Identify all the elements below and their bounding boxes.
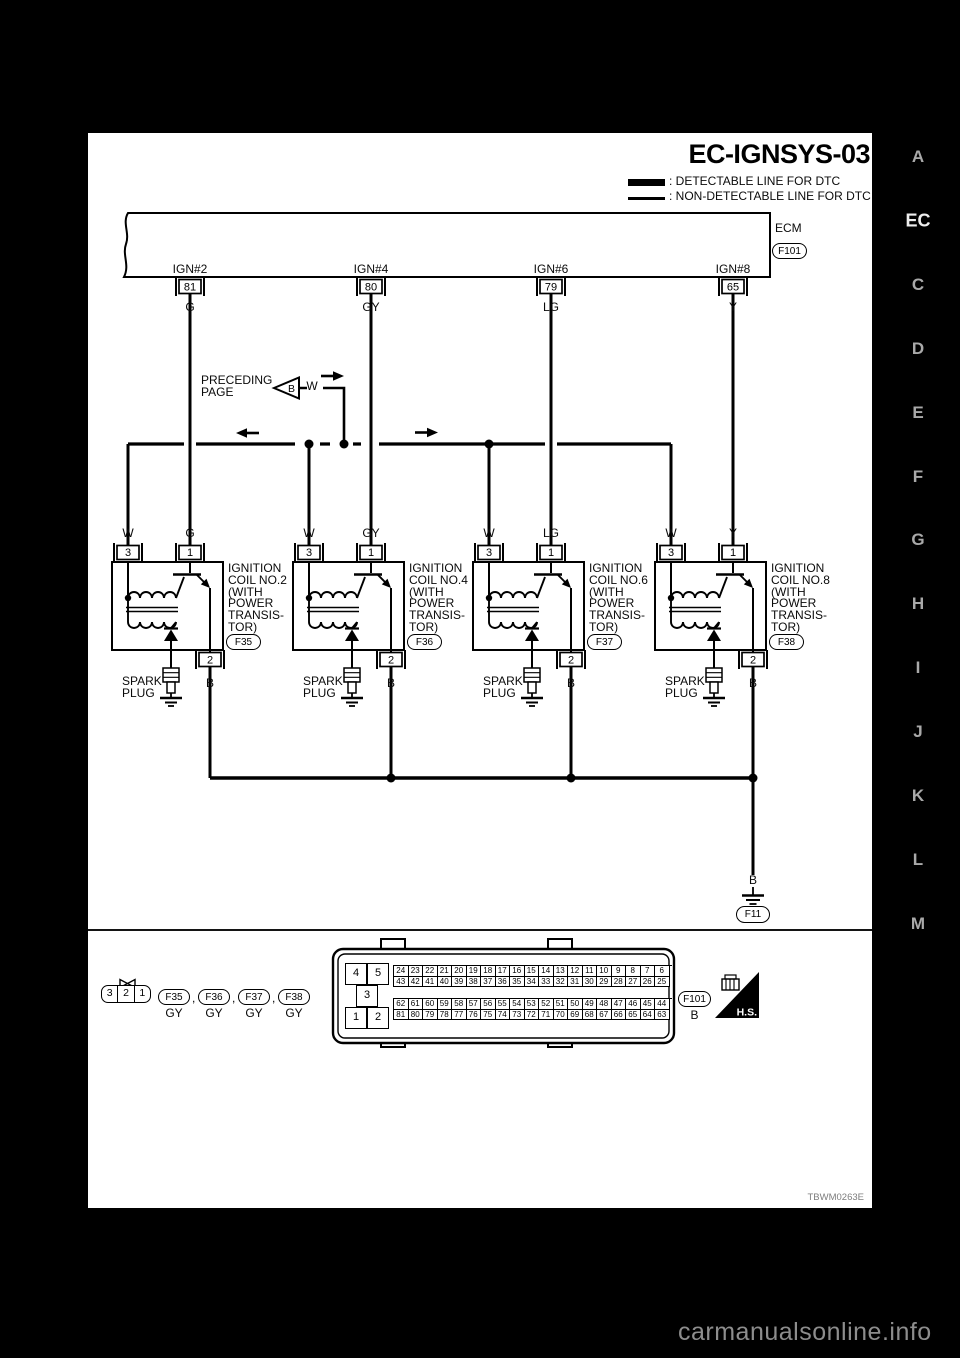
ecm-pin-23: 23 <box>409 966 424 977</box>
ecm-pin-81: 81 <box>394 1010 409 1021</box>
wire-color-label: W <box>108 528 148 540</box>
coil-terminal: 3 <box>668 547 674 559</box>
wire-color-label: Y <box>713 302 753 314</box>
wire-color-label: B <box>738 875 768 887</box>
wire-color-label: LG <box>531 528 571 540</box>
ecm-pin-45: 45 <box>641 999 656 1010</box>
ecm-pin-69: 69 <box>568 1010 583 1021</box>
ecm-pin-47: 47 <box>612 999 627 1010</box>
coil-terminal: 2 <box>388 655 394 667</box>
coil-connector-ref: F37 <box>587 634 622 650</box>
ecm-pin-20: 20 <box>452 966 467 977</box>
sidebar-letter-a: A <box>912 147 924 167</box>
ecm-pin-29: 29 <box>597 977 612 988</box>
junction-dot <box>485 440 494 449</box>
output-label: IGN#4 <box>331 264 411 276</box>
wire-color-label: B <box>559 678 583 690</box>
sidebar-letter-d: D <box>912 339 924 359</box>
sidebar-letter-ec: EC <box>905 210 930 231</box>
ecm-pin-10: 10 <box>597 966 612 977</box>
ecm-terminal-65: 65 <box>719 278 747 296</box>
wire-color-label: Y <box>713 528 753 540</box>
wire-color-label: GY <box>158 1008 190 1020</box>
ecm-pin-38: 38 <box>467 977 482 988</box>
ecm-pin-49: 49 <box>583 999 598 1010</box>
ecm-pin-39: 39 <box>452 977 467 988</box>
ecm-pin-26: 26 <box>641 977 656 988</box>
ecm-pin-21: 21 <box>438 966 453 977</box>
sidebar-letter-j: J <box>913 722 922 742</box>
ecm-side-pin: 4 <box>345 963 367 985</box>
ground-symbol <box>742 887 764 904</box>
ecm-pin-58: 58 <box>452 999 467 1010</box>
svg-text:65: 65 <box>727 282 739 294</box>
wire-color-label: GY <box>278 1008 310 1020</box>
ecm-pin-28: 28 <box>612 977 627 988</box>
legend-nondetectable-label: : NON-DETECTABLE LINE FOR DTC <box>669 191 871 203</box>
ecm-pin-7: 7 <box>641 966 656 977</box>
ecm-pin-34: 34 <box>525 977 540 988</box>
ecm-pin-63: 63 <box>655 1010 670 1021</box>
ecm-pin-73: 73 <box>510 1010 525 1021</box>
junction-dot <box>567 774 576 783</box>
coil-terminal: 2 <box>568 655 574 667</box>
ecm-pin-17: 17 <box>496 966 511 977</box>
junction-dot <box>387 774 396 783</box>
ecm-pin-46: 46 <box>626 999 641 1010</box>
ecm-pin-61: 61 <box>409 999 424 1010</box>
svg-text:79: 79 <box>545 282 557 294</box>
ecm-pin-67: 67 <box>597 1010 612 1021</box>
ecm-pin-13: 13 <box>554 966 569 977</box>
ecm-pin-78: 78 <box>438 1010 453 1021</box>
ecm-connector-ref: F101 <box>772 243 807 259</box>
separator: , <box>192 991 195 1005</box>
wire-color-label: W <box>651 528 691 540</box>
sidebar-letter-m: M <box>911 914 925 934</box>
connector-ref: F35 <box>158 989 190 1005</box>
arrow-right-icon <box>321 371 344 381</box>
ecm-pin-25: 25 <box>655 977 670 988</box>
wire-color-label: LG <box>531 302 571 314</box>
wire-color-label: G <box>170 302 210 314</box>
ecm-terminal-81: 81 <box>176 278 204 296</box>
ecm-pin-64: 64 <box>641 1010 656 1021</box>
sidebar-letter-g: G <box>911 530 924 550</box>
ecm-pin-57: 57 <box>467 999 482 1010</box>
ecm-pin-72: 72 <box>525 1010 540 1021</box>
sidebar-letter-i: I <box>916 658 921 678</box>
wire-color-label: G <box>170 528 210 540</box>
ecm-pin-41: 41 <box>423 977 438 988</box>
sidebar-letter-f: F <box>913 467 923 487</box>
manual-page: B 81 80 79 <box>88 133 872 1208</box>
ecm-pin-42: 42 <box>409 977 424 988</box>
ecm-side-pin: 1 <box>345 1007 367 1029</box>
coil-terminal: 1 <box>548 547 554 559</box>
coil-terminal: 3 <box>125 547 131 559</box>
ecm-pin-48: 48 <box>597 999 612 1010</box>
ecm-pin-19: 19 <box>467 966 482 977</box>
ecm-pin-24: 24 <box>394 966 409 977</box>
ecm-side-pin: 3 <box>356 985 378 1007</box>
svg-text:H.S.: H.S. <box>737 1007 758 1019</box>
ecm-pin-33: 33 <box>539 977 554 988</box>
ecm-pin-71: 71 <box>539 1010 554 1021</box>
ecm-pin-77: 77 <box>452 1010 467 1021</box>
wire-color-label: B <box>198 678 222 690</box>
ecm-side-pin: 5 <box>367 963 389 985</box>
ecm-pin-27: 27 <box>626 977 641 988</box>
coil-terminal: 1 <box>730 547 736 559</box>
sidebar-letter-c: C <box>912 275 924 295</box>
ecm-pin-8: 8 <box>626 966 641 977</box>
figure-code: TBWM0263E <box>808 1192 865 1203</box>
sidebar-letter-h: H <box>912 594 924 614</box>
coil-connector-ref: F36 <box>407 634 442 650</box>
pin: 1 <box>135 986 150 1002</box>
ecm-pin-80: 80 <box>409 1010 424 1021</box>
ecm-pin-62: 62 <box>394 999 409 1010</box>
connector-ref: F36 <box>198 989 230 1005</box>
wire-color-label: B <box>379 678 403 690</box>
ecm-pin-12: 12 <box>568 966 583 977</box>
ground-connector-ref: F11 <box>736 906 770 923</box>
coil-terminal: 1 <box>368 547 374 559</box>
ecm-side-pin: 2 <box>367 1007 389 1029</box>
ecm-pin-65: 65 <box>626 1010 641 1021</box>
ecm-pin-56: 56 <box>481 999 496 1010</box>
coil-terminal: 3 <box>306 547 312 559</box>
junction-dot <box>305 440 314 449</box>
watermark-link[interactable]: carmanualsonline.info <box>678 1318 932 1347</box>
page-title: EC-IGNSYS-03 <box>688 139 870 170</box>
ecm-pin-22: 22 <box>423 966 438 977</box>
page-reference-triangle <box>274 378 299 399</box>
ecm-pin-30: 30 <box>583 977 598 988</box>
separator: , <box>272 991 275 1005</box>
coil-connector-pinout: 3 2 1 <box>101 985 151 1003</box>
wire-color-label: GY <box>238 1008 270 1020</box>
preceding-wire-label: W <box>302 381 322 393</box>
ecm-pin-68: 68 <box>583 1010 598 1021</box>
legend-detectable-line-sample <box>628 179 665 186</box>
page-reference-label: B <box>288 383 295 395</box>
ecm-pin-37: 37 <box>481 977 496 988</box>
wire-color-label: B <box>741 678 765 690</box>
connector-ref: F37 <box>238 989 270 1005</box>
sidebar-letter-l: L <box>913 850 923 870</box>
preceding-page-label: PRECEDING PAGE <box>201 375 272 399</box>
ecm-pin-32: 32 <box>554 977 569 988</box>
sidebar-letter-k: K <box>912 786 924 806</box>
arrow-right-icon <box>415 428 438 438</box>
spark-plug-label: SPARK PLUG <box>303 676 343 700</box>
ecm-pin-79: 79 <box>423 1010 438 1021</box>
coil-terminal: 1 <box>187 547 193 559</box>
coil-connector-ref: F38 <box>769 634 804 650</box>
ecm-pin-52: 52 <box>539 999 554 1010</box>
coil-terminal: 3 <box>486 547 492 559</box>
legend-detectable-label: : DETECTABLE LINE FOR DTC <box>669 176 840 188</box>
pin: 2 <box>118 986 134 1002</box>
spark-plug-label: SPARK PLUG <box>122 676 162 700</box>
svg-text:80: 80 <box>365 282 377 294</box>
section-divider <box>88 929 872 931</box>
ecm-pin-11: 11 <box>583 966 598 977</box>
ecm-pin-60: 60 <box>423 999 438 1010</box>
ecm-pin-grid-bottom: 6261605958575655545352515049484746454481… <box>393 998 672 1020</box>
ecm-pin-55: 55 <box>496 999 511 1010</box>
ecm-pin-36: 36 <box>496 977 511 988</box>
ecm-pin-grid-top: 2423222120191817161514131211109876434241… <box>393 965 672 987</box>
ecm-pin-31: 31 <box>568 977 583 988</box>
legend-nondetectable-line-sample <box>628 197 665 200</box>
connector-ref: F38 <box>278 989 310 1005</box>
ecm-pin-53: 53 <box>525 999 540 1010</box>
ecm-pin-70: 70 <box>554 1010 569 1021</box>
sidebar-letter-e: E <box>912 403 923 423</box>
ecm-pin-59: 59 <box>438 999 453 1010</box>
wire-color-label: W <box>469 528 509 540</box>
ecm-pin-66: 66 <box>612 1010 627 1021</box>
ecm-pin-54: 54 <box>510 999 525 1010</box>
ecm-pin-35: 35 <box>510 977 525 988</box>
wire-color-label: GY <box>198 1008 230 1020</box>
ecm-pin-16: 16 <box>510 966 525 977</box>
coil-name: IGNITION COIL NO.2 (WITH POWER TRANSIS- … <box>228 563 287 634</box>
ecm-label: ECM <box>775 223 802 235</box>
spark-plug-label: SPARK PLUG <box>665 676 705 700</box>
ecm-connector-ref: F101 <box>678 991 711 1007</box>
output-label: IGN#6 <box>511 264 591 276</box>
separator: , <box>232 991 235 1005</box>
wiring-diagram: B 81 80 79 <box>88 133 872 1208</box>
wire-color-label: W <box>289 528 329 540</box>
ecm-pin-18: 18 <box>481 966 496 977</box>
pin: 3 <box>102 986 118 1002</box>
ecm-pin-15: 15 <box>525 966 540 977</box>
coil-name: IGNITION COIL NO.8 (WITH POWER TRANSIS- … <box>771 563 830 634</box>
arrow-left-icon <box>236 428 259 438</box>
ecm-pin-51: 51 <box>554 999 569 1010</box>
coil-connector-ref: F35 <box>226 634 261 650</box>
coil-name: IGNITION COIL NO.6 (WITH POWER TRANSIS- … <box>589 563 648 634</box>
ecm-pin-40: 40 <box>438 977 453 988</box>
wire-color-label: GY <box>351 302 391 314</box>
ecm-output-wires <box>190 293 733 545</box>
ecm-pin-9: 9 <box>612 966 627 977</box>
ecm-terminal-79: 79 <box>537 278 565 296</box>
ecm-pin-44: 44 <box>655 999 670 1010</box>
output-label: IGN#8 <box>693 264 773 276</box>
ecm-pin-14: 14 <box>539 966 554 977</box>
ecm-pin-6: 6 <box>655 966 670 977</box>
ecm-pin-43: 43 <box>394 977 409 988</box>
wire-color-label: B <box>680 1010 709 1022</box>
coil-name: IGNITION COIL NO.4 (WITH POWER TRANSIS- … <box>409 563 468 634</box>
ecm-pin-76: 76 <box>467 1010 482 1021</box>
spark-plug-label: SPARK PLUG <box>483 676 523 700</box>
ecm-pin-50: 50 <box>568 999 583 1010</box>
ecm-terminal-80: 80 <box>357 278 385 296</box>
preceding-page-wire <box>300 388 344 444</box>
ecm-pin-74: 74 <box>496 1010 511 1021</box>
svg-text:81: 81 <box>184 282 196 294</box>
wire-color-label: GY <box>351 528 391 540</box>
ecm-pin-75: 75 <box>481 1010 496 1021</box>
coil-terminal: 2 <box>207 655 213 667</box>
ecm-connector-shell <box>333 939 674 1047</box>
output-label: IGN#2 <box>150 264 230 276</box>
coil-terminal: 2 <box>750 655 756 667</box>
hs-harness-icon: H.S. <box>715 972 759 1019</box>
